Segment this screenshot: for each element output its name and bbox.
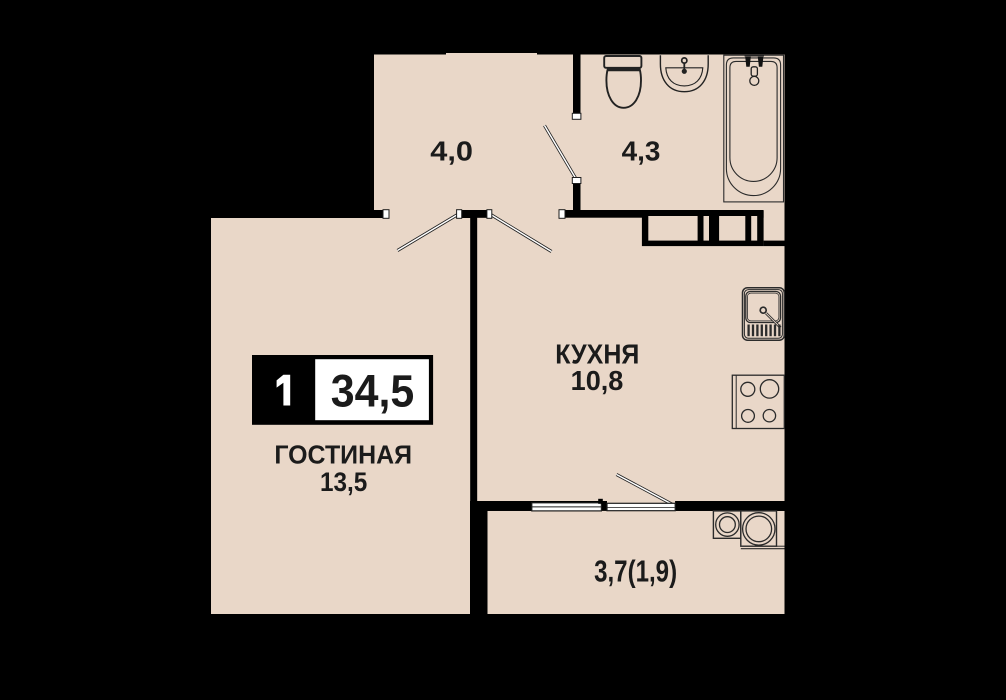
svg-text:34,5: 34,5 bbox=[331, 366, 415, 417]
svg-text:10,8: 10,8 bbox=[571, 365, 624, 396]
svg-text:ГОСТИНАЯ: ГОСТИНАЯ bbox=[274, 440, 412, 470]
svg-text:13,5: 13,5 bbox=[320, 467, 367, 497]
svg-text:4,0: 4,0 bbox=[430, 136, 473, 167]
svg-text:3,7(1,9): 3,7(1,9) bbox=[594, 554, 677, 589]
svg-text:4,3: 4,3 bbox=[622, 136, 661, 167]
